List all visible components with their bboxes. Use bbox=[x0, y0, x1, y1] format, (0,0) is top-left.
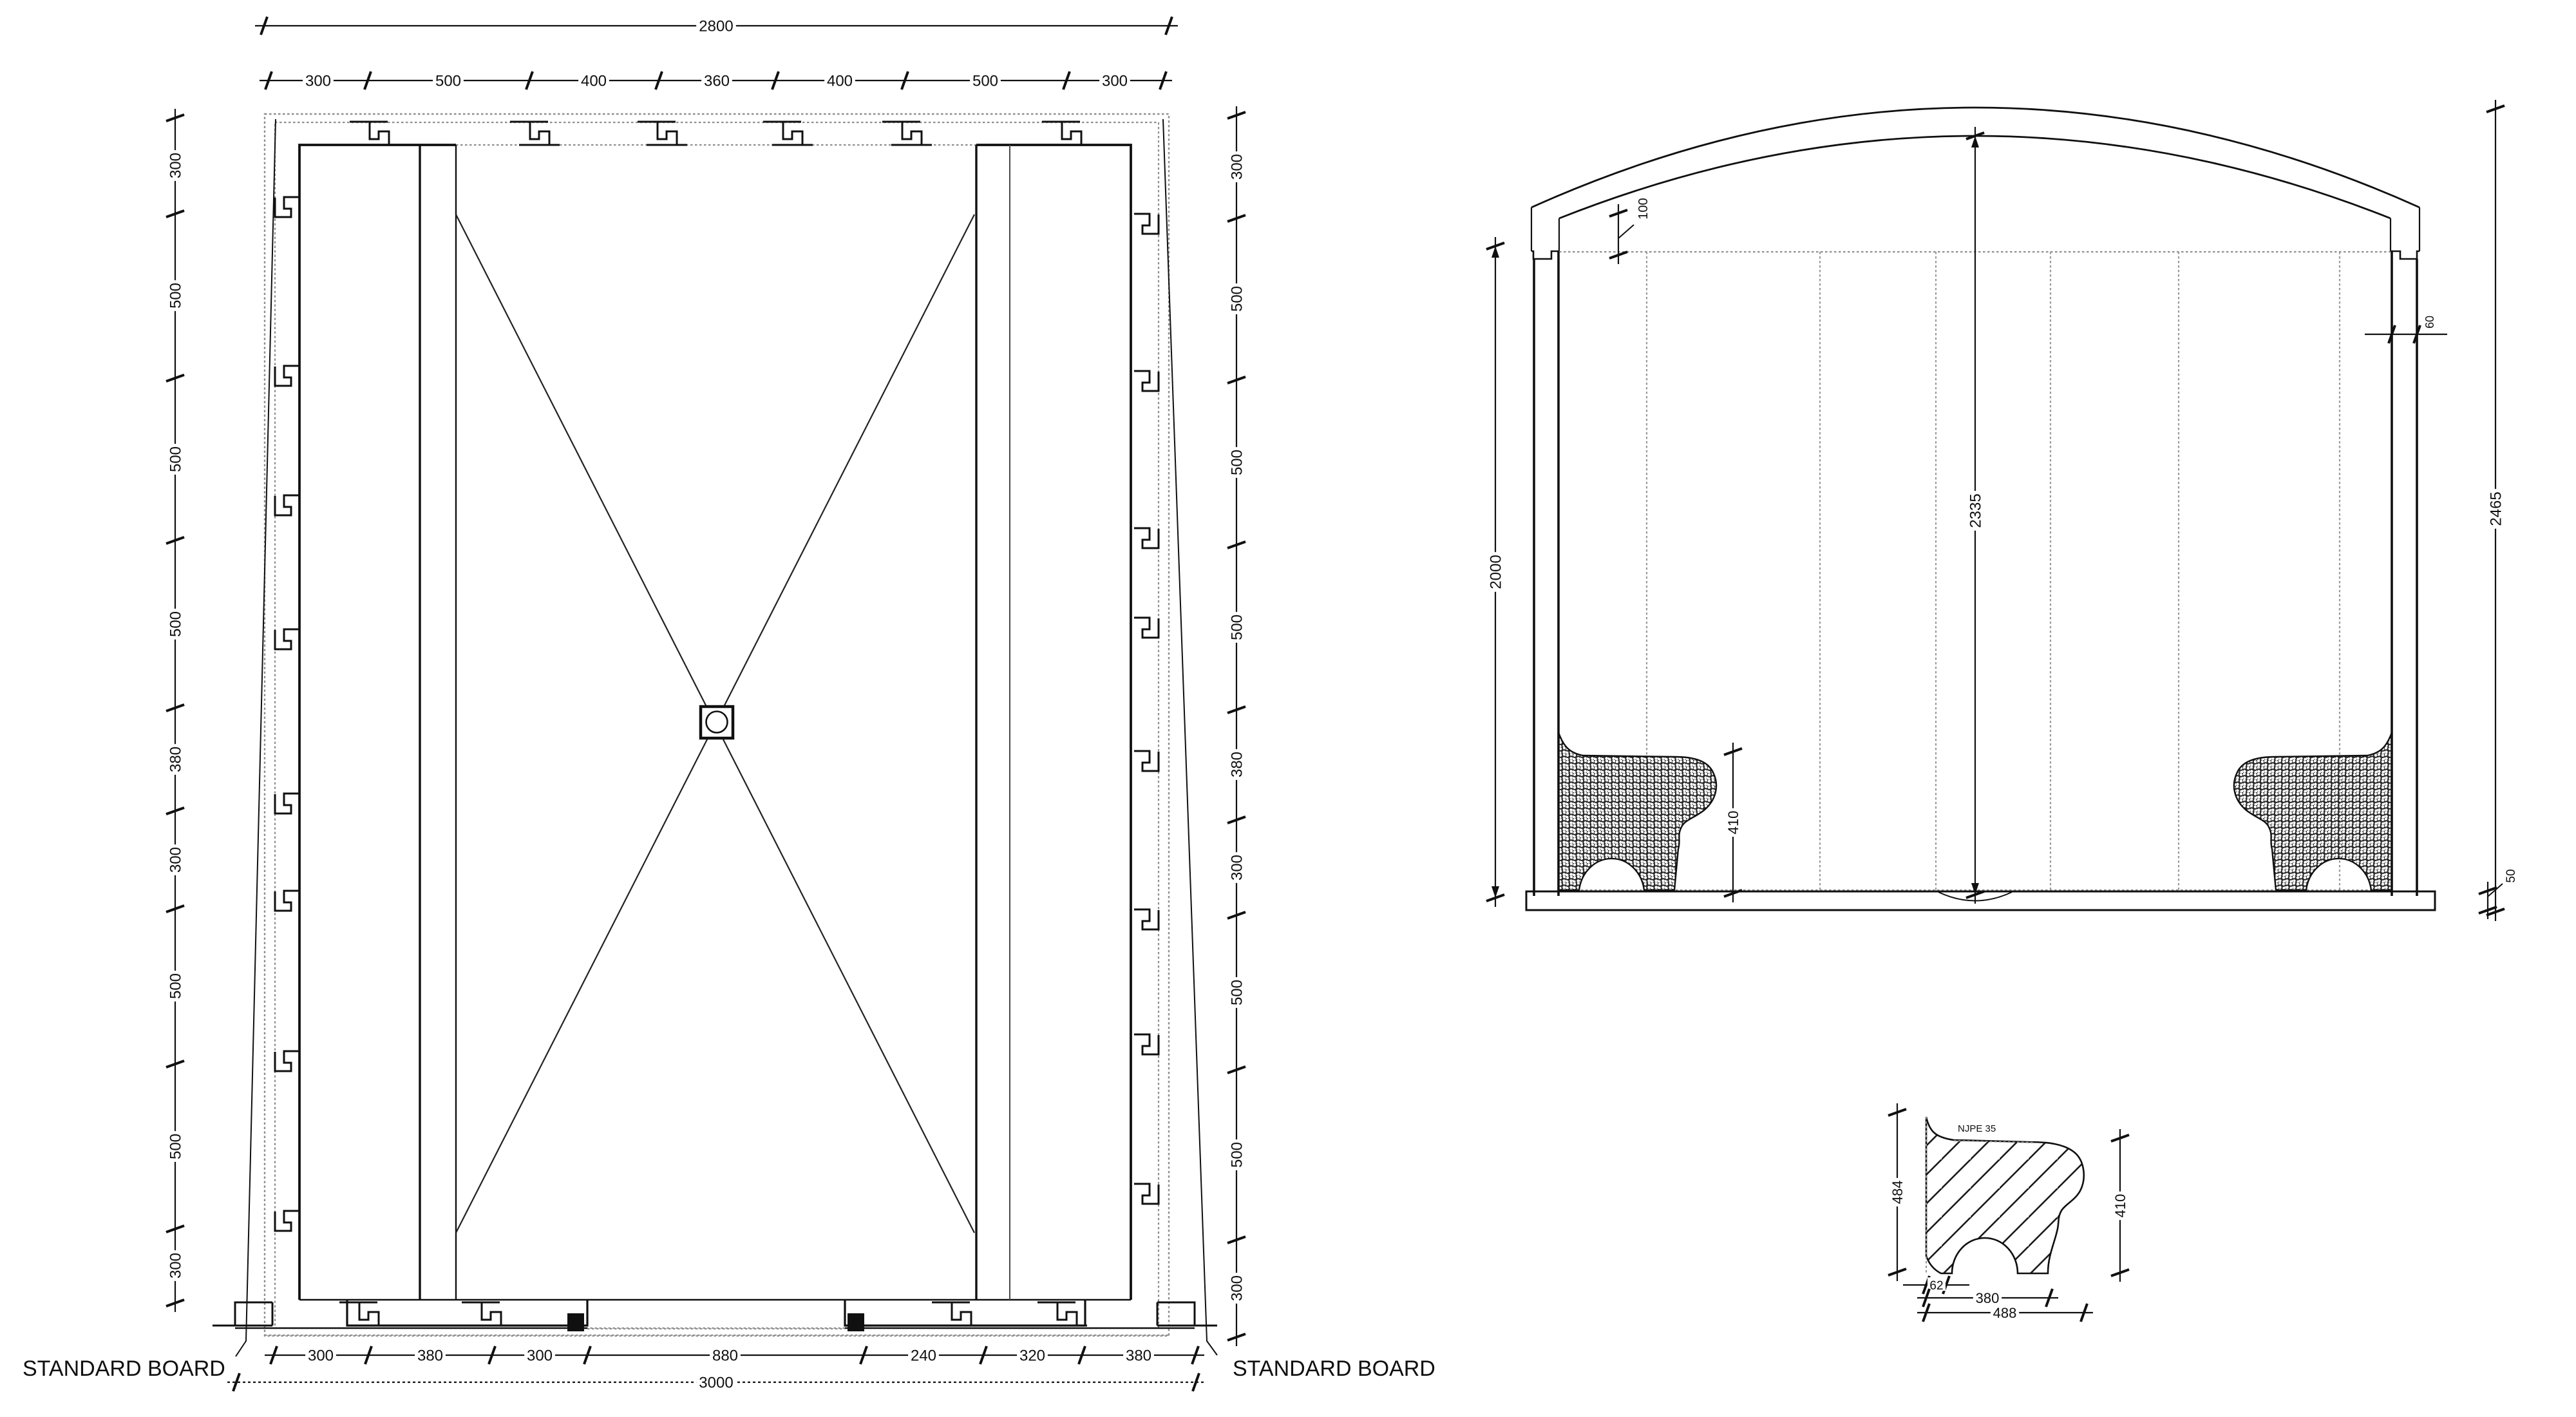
svg-text:400: 400 bbox=[581, 73, 607, 90]
svg-text:300: 300 bbox=[1229, 855, 1246, 880]
svg-text:62: 62 bbox=[1929, 1279, 1943, 1293]
svg-text:50: 50 bbox=[2505, 869, 2518, 882]
svg-text:380: 380 bbox=[1976, 1290, 2000, 1306]
svg-text:240: 240 bbox=[911, 1347, 936, 1365]
svg-text:484: 484 bbox=[1889, 1181, 1906, 1204]
svg-text:3000: 3000 bbox=[699, 1374, 733, 1392]
svg-text:380: 380 bbox=[1126, 1347, 1151, 1365]
svg-text:380: 380 bbox=[417, 1347, 443, 1365]
svg-text:500: 500 bbox=[435, 73, 461, 90]
svg-text:500: 500 bbox=[167, 446, 185, 472]
svg-text:300: 300 bbox=[308, 1347, 334, 1365]
svg-text:500: 500 bbox=[167, 283, 185, 309]
svg-text:380: 380 bbox=[1229, 752, 1246, 777]
svg-text:488: 488 bbox=[1993, 1305, 2017, 1321]
svg-text:300: 300 bbox=[167, 1253, 185, 1279]
svg-text:500: 500 bbox=[1229, 614, 1246, 640]
svg-text:300: 300 bbox=[527, 1347, 553, 1365]
svg-text:2800: 2800 bbox=[699, 18, 733, 35]
svg-text:500: 500 bbox=[1229, 980, 1246, 1005]
svg-text:400: 400 bbox=[827, 73, 853, 90]
svg-text:2465: 2465 bbox=[2488, 491, 2505, 526]
svg-text:410: 410 bbox=[1725, 811, 1741, 835]
svg-text:2335: 2335 bbox=[1967, 493, 1985, 528]
svg-text:300: 300 bbox=[1102, 73, 1128, 90]
svg-text:500: 500 bbox=[1229, 450, 1246, 475]
svg-text:STANDARD BOARD: STANDARD BOARD bbox=[1233, 1356, 1435, 1381]
svg-text:880: 880 bbox=[712, 1347, 738, 1365]
svg-text:320: 320 bbox=[1019, 1347, 1045, 1365]
svg-text:380: 380 bbox=[167, 747, 185, 772]
svg-text:STANDARD BOARD: STANDARD BOARD bbox=[23, 1356, 225, 1381]
svg-text:360: 360 bbox=[704, 73, 730, 90]
svg-text:500: 500 bbox=[167, 1134, 185, 1159]
svg-text:300: 300 bbox=[305, 73, 331, 90]
svg-text:2000: 2000 bbox=[1488, 555, 1505, 589]
svg-text:500: 500 bbox=[167, 611, 185, 637]
svg-text:NJPE 35: NJPE 35 bbox=[1958, 1123, 1996, 1134]
svg-text:300: 300 bbox=[1229, 154, 1246, 180]
svg-text:500: 500 bbox=[1229, 1142, 1246, 1168]
svg-text:300: 300 bbox=[167, 153, 185, 178]
svg-text:300: 300 bbox=[167, 847, 185, 873]
svg-text:100: 100 bbox=[1636, 198, 1651, 219]
svg-text:300: 300 bbox=[1229, 1275, 1246, 1301]
svg-text:500: 500 bbox=[972, 73, 998, 90]
svg-text:60: 60 bbox=[2423, 316, 2436, 328]
svg-text:410: 410 bbox=[2112, 1194, 2128, 1218]
svg-text:500: 500 bbox=[1229, 286, 1246, 312]
svg-text:500: 500 bbox=[167, 973, 185, 999]
